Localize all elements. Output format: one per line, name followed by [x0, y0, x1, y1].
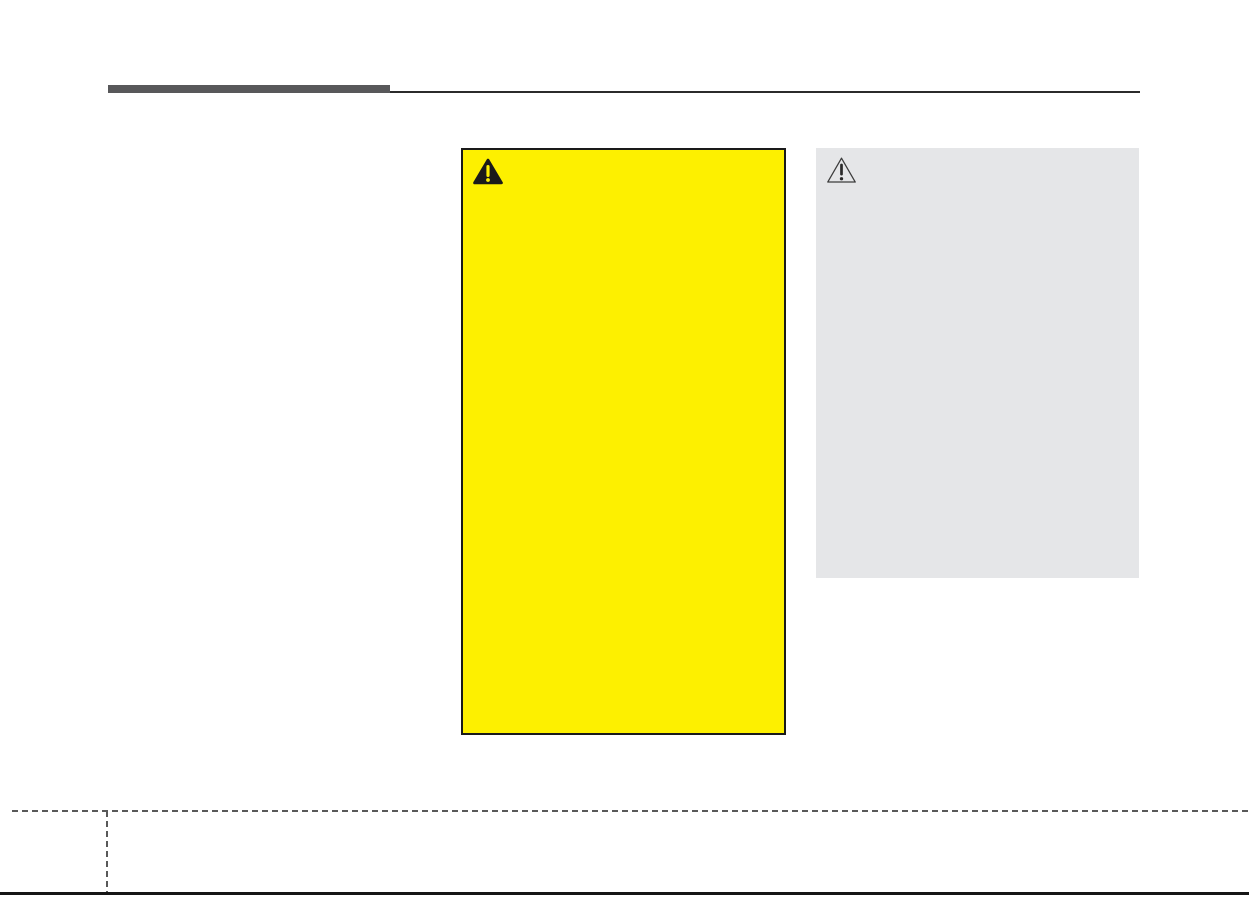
warning-callout-box: [461, 148, 786, 735]
caution-callout-box: [816, 148, 1139, 578]
warning-triangle-outline-icon: [826, 155, 857, 186]
section-header-bar: [108, 85, 390, 93]
footer-dashed-line-vertical: [106, 811, 108, 893]
header-rule-line: [390, 91, 1140, 93]
exclamation-dot: [486, 178, 490, 182]
warning-triangle-filled-icon: [473, 158, 503, 186]
exclamation-dot: [840, 177, 843, 180]
page-bottom-edge-line: [0, 892, 1249, 895]
footer-dashed-line-horizontal: [12, 810, 1249, 812]
